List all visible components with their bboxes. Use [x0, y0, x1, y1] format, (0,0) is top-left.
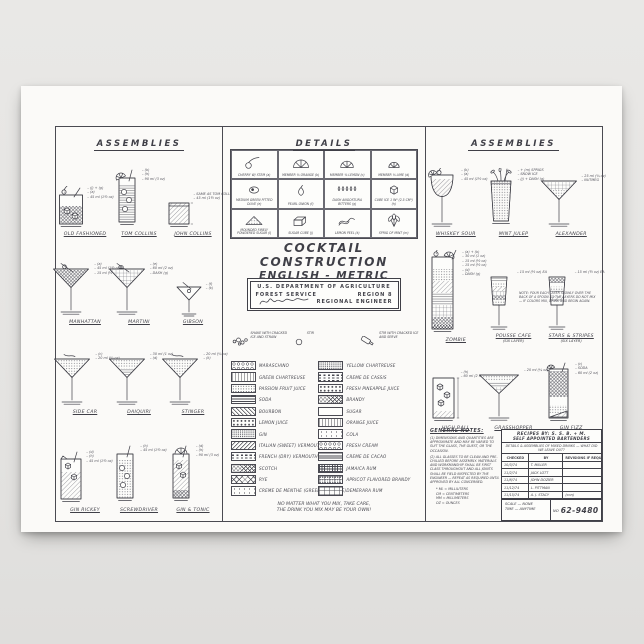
hatch-swatch-gridh [318, 464, 343, 473]
whiskey-sour-drink: (b)(a)45 ml (1½ oz)WHISKEY SOUR [427, 141, 485, 237]
legend-row: DEMERARA RUM [318, 485, 421, 496]
mint-julep-drink: + (m) SPRIGSSNOW ICE(j) + DASH (g)MINT J… [485, 141, 543, 237]
revision-cell: A. J. STACY [529, 492, 564, 500]
drawing-number: NO 62-9480 [551, 500, 601, 520]
details-center-panel: DETAILS CHERRY W/ STEM (a)MEMBER ⅛ ORANG… [222, 127, 426, 521]
hatch-swatch-dots [231, 384, 256, 393]
hatch-swatch-hdense [318, 452, 343, 461]
stamp-engineer: REGIONAL ENGINEER [317, 299, 393, 305]
dimension-annotations: (d)(h)45 ml (1½ oz) [86, 450, 113, 463]
detail-label: MEDIUM GREEN PITTED OLIVE (e) [232, 199, 277, 207]
bitters-icon [336, 180, 358, 199]
grasshopper-glass-icon [475, 368, 523, 424]
detail-label: PEARL ONION (f) [287, 203, 315, 208]
cocktail-construction-poster: ASSEMBLIES (j) + (g)(a)45 ml (1½ oz)OLD … [21, 86, 622, 532]
hatch-swatch-dotsp [231, 486, 256, 495]
general-note: (1) DIMENSIONS AND QUANTITIES ARE APPROX… [430, 436, 500, 453]
revision-cell [563, 469, 601, 477]
john-collins-glass-icon [165, 192, 193, 230]
gin-rickey-drink: (d)(h)45 ml (1½ oz)GIN RICKEY [58, 413, 112, 513]
detail-label: MEMBER ⅛ LEMON (c) [329, 174, 366, 179]
ingredient-label: APRICOT FLAVORED BRANDY [346, 477, 410, 482]
detail-label: SUGAR CUBE (j) [287, 232, 314, 237]
stamp-region: REGION 8 [358, 292, 393, 298]
detail-label: CUBE ICE 1 IN³ (2.5 CM³) (h) [372, 199, 417, 207]
assembly-row: (h)60 ml (2 oz)HIGH BALL20 ml (¾ oz) EAG… [427, 341, 600, 431]
legend-row: JAMAICA RUM [318, 463, 421, 474]
details-grid: CHERRY W/ STEM (a)MEMBER ⅛ ORANGE (b)MEM… [230, 149, 418, 239]
sheet-title: COCKTAIL CONSTRUCTION ENGLISH - METRIC [223, 241, 425, 282]
legend-row: BOURBON [231, 406, 318, 417]
stinger-glass-icon [158, 352, 202, 408]
detail-cell-cherry: CHERRY W/ STEM (a) [231, 150, 278, 179]
hatch-swatch-diag [231, 407, 256, 416]
zombie-drink: (a) + (b)30 ml (1 oz)15 ml (½ oz)15 ml (… [427, 235, 485, 343]
hatch-swatch-dotsp [318, 429, 343, 438]
alexander-drink: 25 ml (¾ oz)NUTMEGALEXANDER [542, 141, 600, 237]
hatch-swatch-vdash [318, 418, 343, 427]
gin-fizz-glass-icon [544, 362, 574, 424]
side-car-drink: (c)20 ml (¾ oz)SIDE CAR [58, 323, 112, 415]
lemon-icon [336, 151, 358, 174]
gin-fizz-drink: (c)SODA60 ml (2 oz)GIN FIZZ [542, 341, 600, 431]
hatch-swatch-dotlg [231, 418, 256, 427]
legend-key-stir: STIR [294, 332, 357, 351]
ingredient-label: GIN [259, 432, 267, 437]
drink-label: GIN RICKEY [70, 508, 100, 513]
grasshopper-drink: 20 ml (¾ oz) EAGRASSHOPPER [485, 341, 543, 431]
hatch-swatch-dotsm [231, 429, 256, 438]
legend-material-key: MARASCHINOGREEN CHARTREUSEPASSION FRUIT … [231, 360, 421, 497]
ingredient-label: PASSION FRUIT JUICE [259, 386, 306, 391]
revision-column-header: CHECKED [502, 454, 529, 462]
revision-cell [563, 484, 601, 492]
right-panel-title: ASSEMBLIES [425, 131, 602, 150]
detail-label: SPRIG OF MINT (m) [378, 232, 410, 237]
title-block-description: DETAILS & ASSEMBLIES OF MIXED DRINKS — W… [502, 443, 601, 454]
dimension-annotations: 25 ml (¾ oz)NUTMEG [582, 174, 606, 183]
detail-label: MEMBER ⅛ LIME (d) [377, 174, 410, 179]
cherry-icon [243, 151, 265, 174]
stars-stripes-drink: 15 ml (½ oz) EASTARS & STRIPES(SIX LAYER… [542, 235, 600, 343]
stinger-drink: 20 ml (¾ oz)(k)STINGER [166, 323, 220, 415]
ingredient-label: SCOTCH [259, 466, 277, 471]
detail-cell-olive: MEDIUM GREEN PITTED OLIVE (e) [231, 179, 278, 208]
tom-collins-glass-icon [113, 168, 141, 230]
ingredient-label: BRANDY [346, 397, 364, 402]
assembly-row: (j) + (g)(a)45 ml (1½ oz)OLD FASHIONED(b… [58, 143, 220, 237]
manhattan-drink: (a)45 ml (1½ oz)15 ml (½ oz)MANHATTAN [58, 237, 112, 325]
revision-cell: 11/8/74 [502, 477, 529, 485]
revision-cell: 11/15/74 [502, 492, 529, 500]
detail-cell-sugar_mound: MOUNDED FINELY POWDERED SUGAR (i) [231, 209, 278, 238]
orange-icon [290, 151, 312, 174]
legend-row: SODA [231, 394, 318, 405]
dimension-annotations: (d)(h)90 ml (3 oz) [196, 444, 219, 457]
side-car-glass-icon [50, 352, 94, 408]
detail-cell-bitters: DASH ANGOSTURA BITTERS (g) [324, 179, 371, 208]
legend-row: GREEN CHARTREUSE [231, 371, 318, 382]
general-note: (2) ALL GLASSES TO BE CLEAN AND PRE-CHIL… [430, 455, 500, 484]
hatch-swatch-hdash [318, 372, 343, 381]
legend-row: CREME DE CASSIS [318, 371, 421, 382]
ingredient-label: JAMAICA RUM [346, 466, 376, 471]
detail-label: DASH ANGOSTURA BITTERS (g) [325, 199, 370, 207]
dimension-annotations: (c)SODA60 ml (2 oz) [575, 362, 598, 375]
old-fashioned-drink: (j) + (g)(a)45 ml (1½ oz)OLD FASHIONED [58, 143, 112, 237]
detail-label: LEMON PEEL (k) [334, 232, 361, 237]
ingredient-label: MARASCHINO [259, 363, 289, 368]
legend-key-label: STIR WITH CRACKED ICE AND SERVE [379, 332, 421, 340]
drink-label: SCREWDRIVER [120, 508, 158, 513]
hatch-swatch-horiz [231, 395, 256, 404]
legend-key-label: SHAKE WITH CRACKED ICE AND STRAIN [251, 332, 293, 340]
ingredient-label: FRESH PINEAPPLE JUICE [346, 386, 399, 391]
onion-icon [290, 180, 312, 203]
mint-julep-glass-icon [483, 168, 517, 230]
detail-cell-ice: CUBE ICE 1 IN³ (2.5 CM³) (h) [371, 179, 418, 208]
ingredient-label: BOURBON [259, 409, 281, 414]
assembly-row: (d)(h)45 ml (1½ oz)GIN RICKEY(h)45 ml (1… [58, 413, 220, 513]
revision-column-header: BY [529, 454, 564, 462]
hatch-swatch-diamond [231, 475, 256, 484]
signature-icon [258, 295, 312, 309]
revision-cell: 11/12/74 [502, 484, 529, 492]
legend-row: FRENCH (DRY) VERMOUTH [231, 451, 318, 462]
legend-row: CREME DE CACAO [318, 451, 421, 462]
revision-column-header: REVISIONS IF REQUIRED [563, 454, 601, 462]
hatch-swatch-hdash [231, 452, 256, 461]
legend-key-shake: SHAKE WITH CRACKED ICE AND STRAIN [231, 332, 294, 351]
assembly-row: (c)20 ml (¾ oz)SIDE CAR30 ml (1 oz)(d)DA… [58, 323, 220, 415]
ingredient-label: FRENCH (DRY) VERMOUTH [259, 454, 318, 459]
legend-row: RYE [231, 474, 318, 485]
manhattan-glass-icon [49, 262, 93, 318]
dimension-annotations: 15 ml (½ oz) EA [575, 270, 603, 274]
gin-rickey-glass-icon [57, 450, 85, 506]
detail-label: MEMBER ⅛ ORANGE (b) [281, 174, 320, 179]
ingredient-label: FRESH CREAM [346, 443, 378, 448]
detail-cell-lemon: MEMBER ⅛ LEMON (c) [324, 150, 371, 179]
mint-icon [383, 210, 405, 233]
legend-row: LEMON JUICE [231, 417, 318, 428]
legend-row: FRESH CREAM [318, 440, 421, 451]
gin-tonic-glass-icon [167, 444, 195, 506]
revision-cell: 11/2/74 [502, 469, 529, 477]
legend-row: BRANDY [318, 394, 421, 405]
whiskey-sour-glass-icon [424, 168, 460, 230]
ingredient-label: ITALIAN (SWEET) VERMOUTH [259, 443, 323, 448]
hatch-swatch-brickdot [318, 475, 343, 484]
left-panel-title: ASSEMBLIES [56, 131, 222, 150]
alexander-glass-icon [537, 174, 581, 230]
dimension-annotations: SAME AS TOM COLLINS45 ml (1½ oz) [194, 192, 222, 201]
martini-drink: (e)60 ml (2 oz)DASH (g)MARTINI [112, 237, 166, 325]
revision-table: CHECKEDBYREVISIONS IF REQUIRED10/3/74T. … [502, 454, 601, 499]
john-collins-drink: SAME AS TOM COLLINS45 ml (1½ oz)JOHN COL… [166, 143, 220, 237]
legend-row: YELLOW CHARTREUSE [318, 360, 421, 371]
peel-icon [336, 210, 358, 233]
title-block-scale: SCALE — NONE TIME — ANYTIME [502, 500, 551, 520]
pour-icon [358, 332, 378, 351]
legend-row: CREME DE MENTHE (GREEN OR WHITE) [231, 485, 318, 496]
assembly-row: (a)45 ml (1½ oz)15 ml (½ oz)MANHATTAN(e)… [58, 237, 220, 325]
ingredient-label: CREME DE CACAO [346, 454, 386, 459]
sheet-title-line1: COCKTAIL CONSTRUCTION [223, 241, 425, 269]
shake-icon [231, 332, 249, 351]
revision-cell: T. MILLER [529, 462, 564, 470]
lime-icon [383, 151, 405, 174]
ingredient-label: CREME DE CASSIS [346, 375, 386, 380]
high-ball-glass-icon [428, 370, 460, 424]
title-block: RECIPES BY: S. S. B. + M. SELF APPOINTED… [501, 429, 602, 521]
detail-cell-orange: MEMBER ⅛ ORANGE (b) [278, 150, 325, 179]
hatch-swatch-rings [318, 441, 343, 450]
legend-key-pour: STIR WITH CRACKED ICE AND SERVE [358, 332, 421, 351]
assembly-row: (b)(a)45 ml (1½ oz)WHISKEY SOUR+ (m) SPR… [427, 141, 600, 237]
legend-row: ITALIAN (SWEET) VERMOUTH [231, 440, 318, 451]
drink-label: GIN & TONIC [176, 508, 209, 513]
detail-label: MOUNDED FINELY POWDERED SUGAR (i) [232, 229, 277, 237]
hatch-swatch-blank [318, 407, 343, 416]
hatch-swatch-dotsm [318, 361, 343, 370]
gin-tonic-drink: (d)(h)90 ml (3 oz)GIN & TONIC [166, 413, 220, 513]
dimension-annotations: (f)(k) [206, 282, 213, 291]
legend-row: ORANGE JUICE [318, 417, 421, 428]
sugar-mound-icon [243, 210, 265, 229]
sugar-cube-icon [290, 210, 312, 233]
drawing-sheet-frame: ASSEMBLIES (j) + (g)(a)45 ml (1½ oz)OLD … [55, 126, 603, 522]
revision-cell: 10/3/74 [502, 462, 529, 470]
unit-footnote: OZ ≈ OUNCES [436, 501, 500, 506]
assemblies-right-panel: ASSEMBLIES (b)(a)45 ml (1½ oz)WHISKEY SO… [425, 127, 602, 521]
hatch-swatch-dotlg [318, 384, 343, 393]
dimension-annotations: (b)(h)90 ml (3 oz) [142, 168, 165, 181]
legend-column-left: MARASCHINOGREEN CHARTREUSEPASSION FRUIT … [231, 360, 318, 497]
ingredient-label: RYE [259, 477, 268, 482]
legend-key-label: STIR [307, 332, 314, 336]
legend-row: SCOTCH [231, 463, 318, 474]
revision-cell: JACK LOTT [529, 469, 564, 477]
hatch-swatch-diag2 [231, 441, 256, 450]
revision-cell: (con) [563, 492, 601, 500]
ingredient-label: SUGAR [346, 409, 361, 414]
detail-cell-lime: MEMBER ⅛ LIME (d) [371, 150, 418, 179]
detail-cell-onion: PEARL ONION (f) [278, 179, 325, 208]
assembly-row: (a) + (b)30 ml (1 oz)15 ml (½ oz)15 ml (… [427, 235, 600, 343]
hatch-swatch-rings [231, 361, 256, 370]
legend-keys: SHAKE WITH CRACKED ICE AND STRAINSTIRSTI… [231, 332, 421, 351]
hatch-swatch-vdash [231, 372, 256, 381]
revision-cell: L. PITTMAN [529, 484, 564, 492]
legend-row: MARASCHINO [231, 360, 318, 371]
ingredient-label: COLA [346, 432, 358, 437]
assemblies-left-panel: ASSEMBLIES (j) + (g)(a)45 ml (1½ oz)OLD … [56, 127, 222, 521]
left-drinks-area: (j) + (g)(a)45 ml (1½ oz)OLD FASHIONED(b… [56, 127, 222, 521]
ingredient-label: GREEN CHARTREUSE [259, 375, 305, 380]
daiquiri-glass-icon [105, 352, 149, 408]
pousse-cafe-glass-icon [482, 270, 516, 332]
hatch-swatch-cross [318, 395, 343, 404]
legend-row: COLA [318, 428, 421, 439]
title-block-bartenders: SELF APPOINTED BARTENDERS [502, 436, 601, 441]
layering-note: NOTE: POUR EACH LAYER SLOWLY OVER THE BA… [519, 291, 597, 303]
legend-row: GIN [231, 428, 318, 439]
center-panel-title: DETAILS [223, 131, 425, 150]
screwdriver-glass-icon [111, 444, 139, 506]
martini-glass-icon [105, 262, 149, 318]
detail-cell-mint: SPRIG OF MINT (m) [371, 209, 418, 238]
revision-cell [563, 477, 601, 485]
legend-row: PASSION FRUIT JUICE [231, 383, 318, 394]
tom-collins-drink: (b)(h)90 ml (3 oz)TOM COLLINS [112, 143, 166, 237]
legend-row: APRICOT FLAVORED BRANDY [318, 474, 421, 485]
legend-column-right: YELLOW CHARTREUSECREME DE CASSISFRESH PI… [318, 360, 421, 497]
stamp-agency: U.S. DEPARTMENT OF AGRICULTURE [256, 284, 393, 290]
ice-icon [383, 180, 405, 199]
gibson-glass-icon [173, 282, 205, 318]
ingredient-label: DEMERARA RUM [346, 488, 382, 493]
product-photo-page: { "colors": {"page_background":"#e6e5e3"… [0, 0, 644, 644]
revision-cell: JOHN DOZIER [529, 477, 564, 485]
dimension-annotations: (j) + (g)(a)45 ml (1½ oz) [87, 186, 114, 199]
ingredient-label: LEMON JUICE [259, 420, 288, 425]
hatch-swatch-brick [318, 486, 343, 495]
general-notes-heading: GENERAL NOTES: [430, 429, 500, 434]
screwdriver-drink: (h)45 ml (1½ oz)SCREWDRIVER [112, 413, 166, 513]
gibson-drink: (f)(k)GIBSON [166, 237, 220, 325]
stir-icon [294, 332, 305, 351]
detail-cell-peel: LEMON PEEL (k) [324, 209, 371, 238]
ingredient-label: ORANGE JUICE [346, 420, 378, 425]
olive-icon [243, 180, 265, 199]
legend-row: SUGAR [318, 406, 421, 417]
general-notes: GENERAL NOTES: (1) DIMENSIONS AND QUANTI… [430, 429, 500, 518]
hatch-swatch-cross [231, 464, 256, 473]
detail-label: CHERRY W/ STEM (a) [237, 174, 271, 179]
old-fashioned-glass-icon [56, 186, 86, 230]
caution-note: NO MATTER WHAT YOU MIX, TAKE CARE, THE D… [223, 502, 425, 513]
ingredient-label: SODA [259, 397, 272, 402]
legend-row: FRESH PINEAPPLE JUICE [318, 383, 421, 394]
ingredient-label: YELLOW CHARTREUSE [346, 363, 395, 368]
revision-cell [563, 462, 601, 470]
usda-stamp: U.S. DEPARTMENT OF AGRICULTURE FOREST SE… [247, 278, 401, 311]
pousse-cafe-drink: 15 ml (½ oz) EAPOUSSE CAFE(SIX LAYER) [485, 235, 543, 343]
detail-cell-sugar_cube: SUGAR CUBE (j) [278, 209, 325, 238]
dimension-annotations: (h)45 ml (1½ oz) [140, 444, 167, 453]
zombie-glass-icon [425, 250, 461, 336]
